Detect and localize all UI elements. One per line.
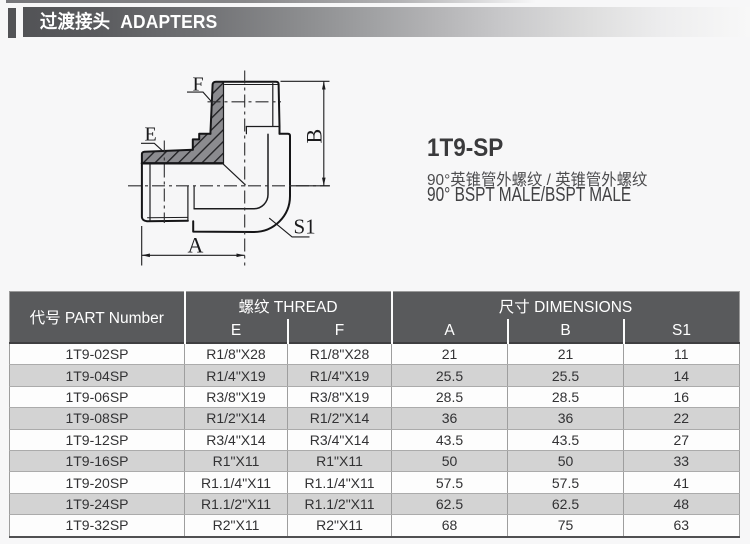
svg-text:E: E — [145, 124, 157, 146]
svg-text:A: A — [188, 233, 204, 258]
svg-text:B: B — [302, 129, 327, 144]
svg-text:F: F — [193, 74, 204, 96]
svg-text:S1: S1 — [294, 215, 316, 239]
